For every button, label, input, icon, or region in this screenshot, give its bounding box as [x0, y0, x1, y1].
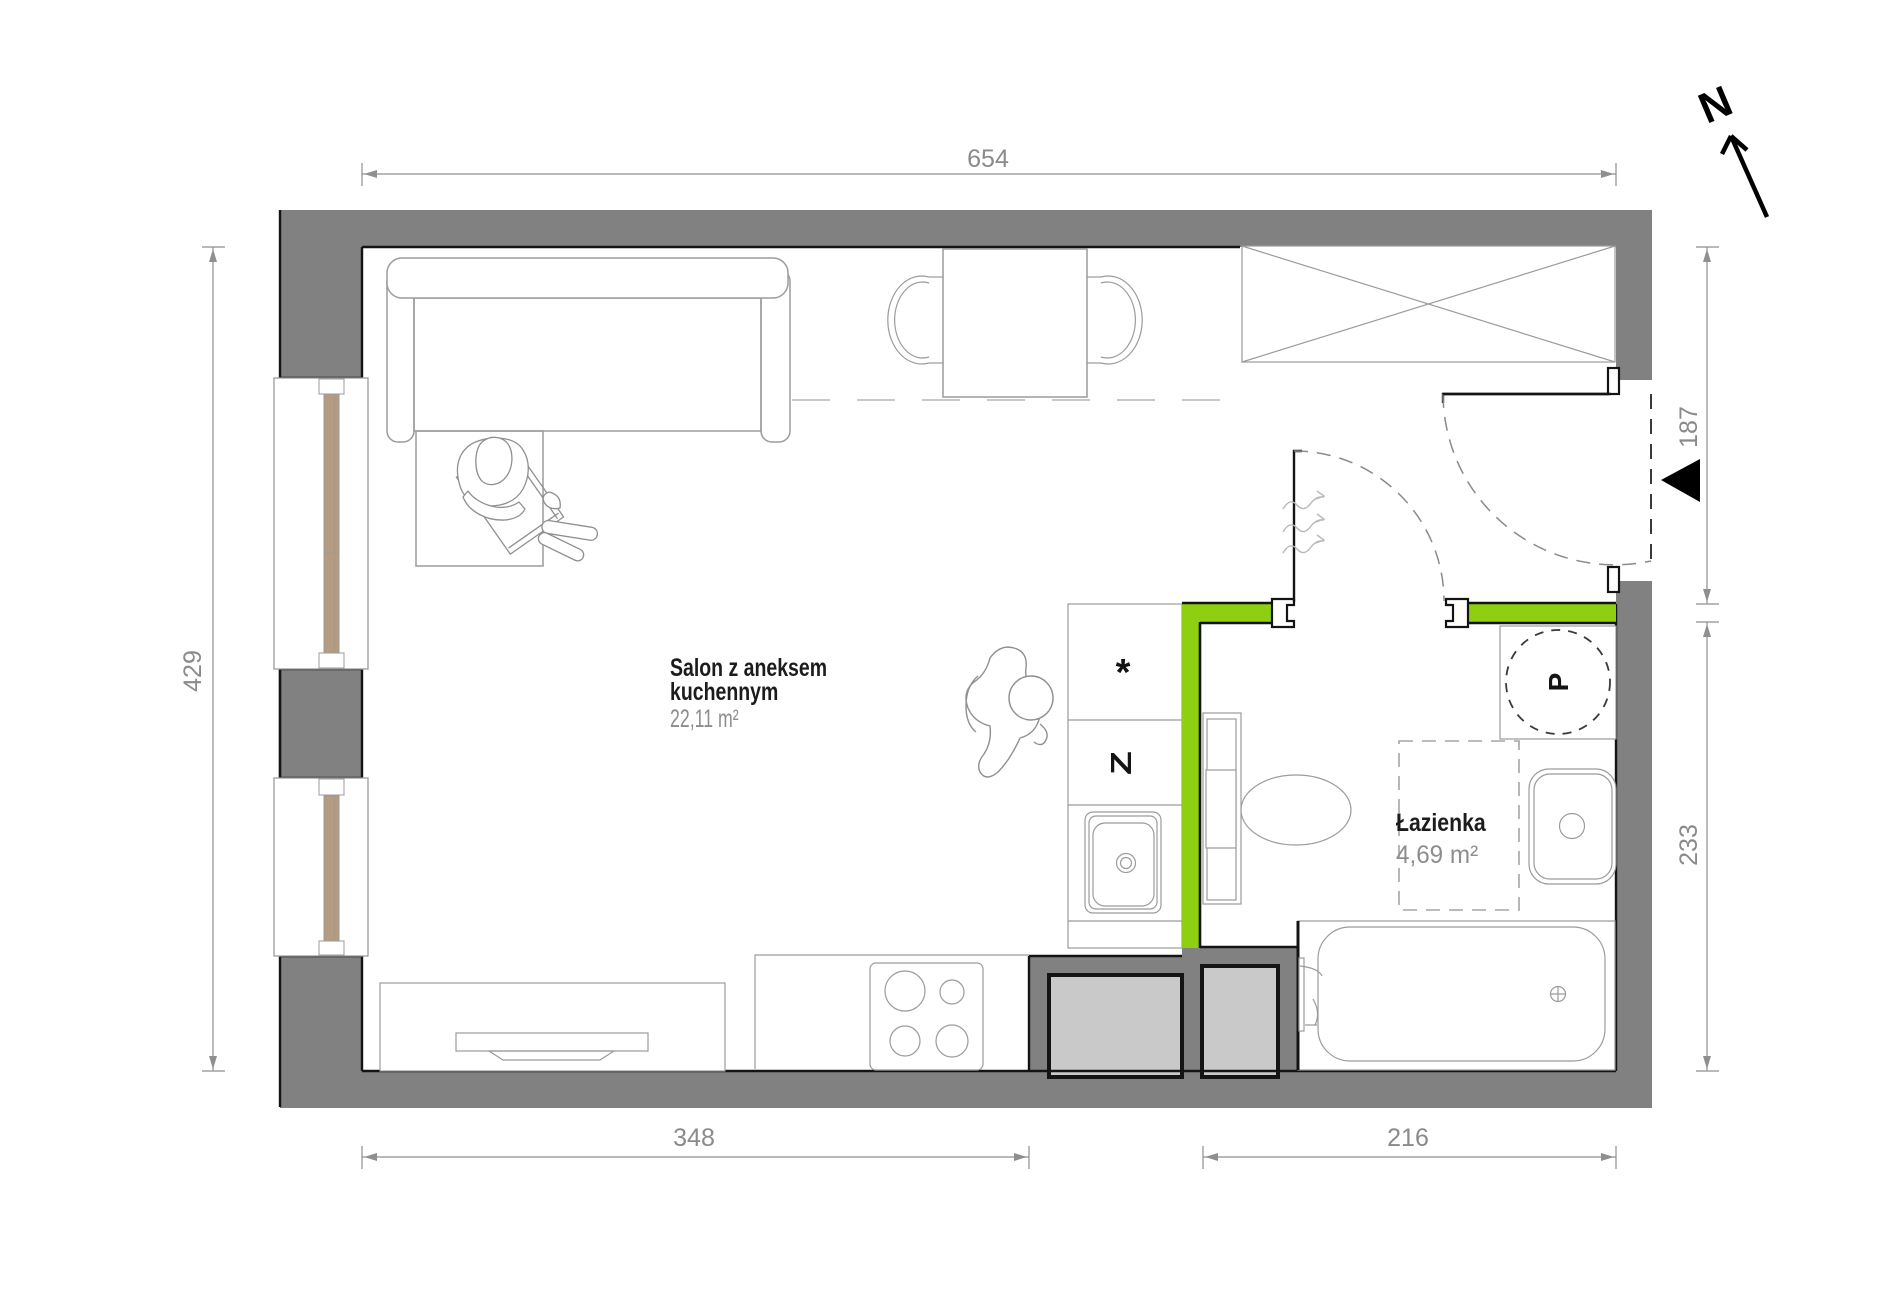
svg-text:P: P [1543, 673, 1574, 692]
svg-text:4,69 m²: 4,69 m² [1396, 842, 1478, 869]
svg-text:187: 187 [1675, 406, 1703, 448]
svg-text:Z: Z [1106, 751, 1138, 775]
svg-text:348: 348 [673, 1124, 715, 1152]
svg-text:216: 216 [1387, 1124, 1429, 1152]
svg-text:*: * [1116, 652, 1131, 694]
svg-text:kuchennym: kuchennym [670, 678, 778, 706]
svg-text:Łazienka: Łazienka [1396, 808, 1487, 836]
svg-text:233: 233 [1675, 824, 1703, 866]
svg-text:654: 654 [967, 145, 1009, 173]
svg-text:22,11 m²: 22,11 m² [670, 704, 739, 733]
svg-text:429: 429 [179, 650, 207, 692]
